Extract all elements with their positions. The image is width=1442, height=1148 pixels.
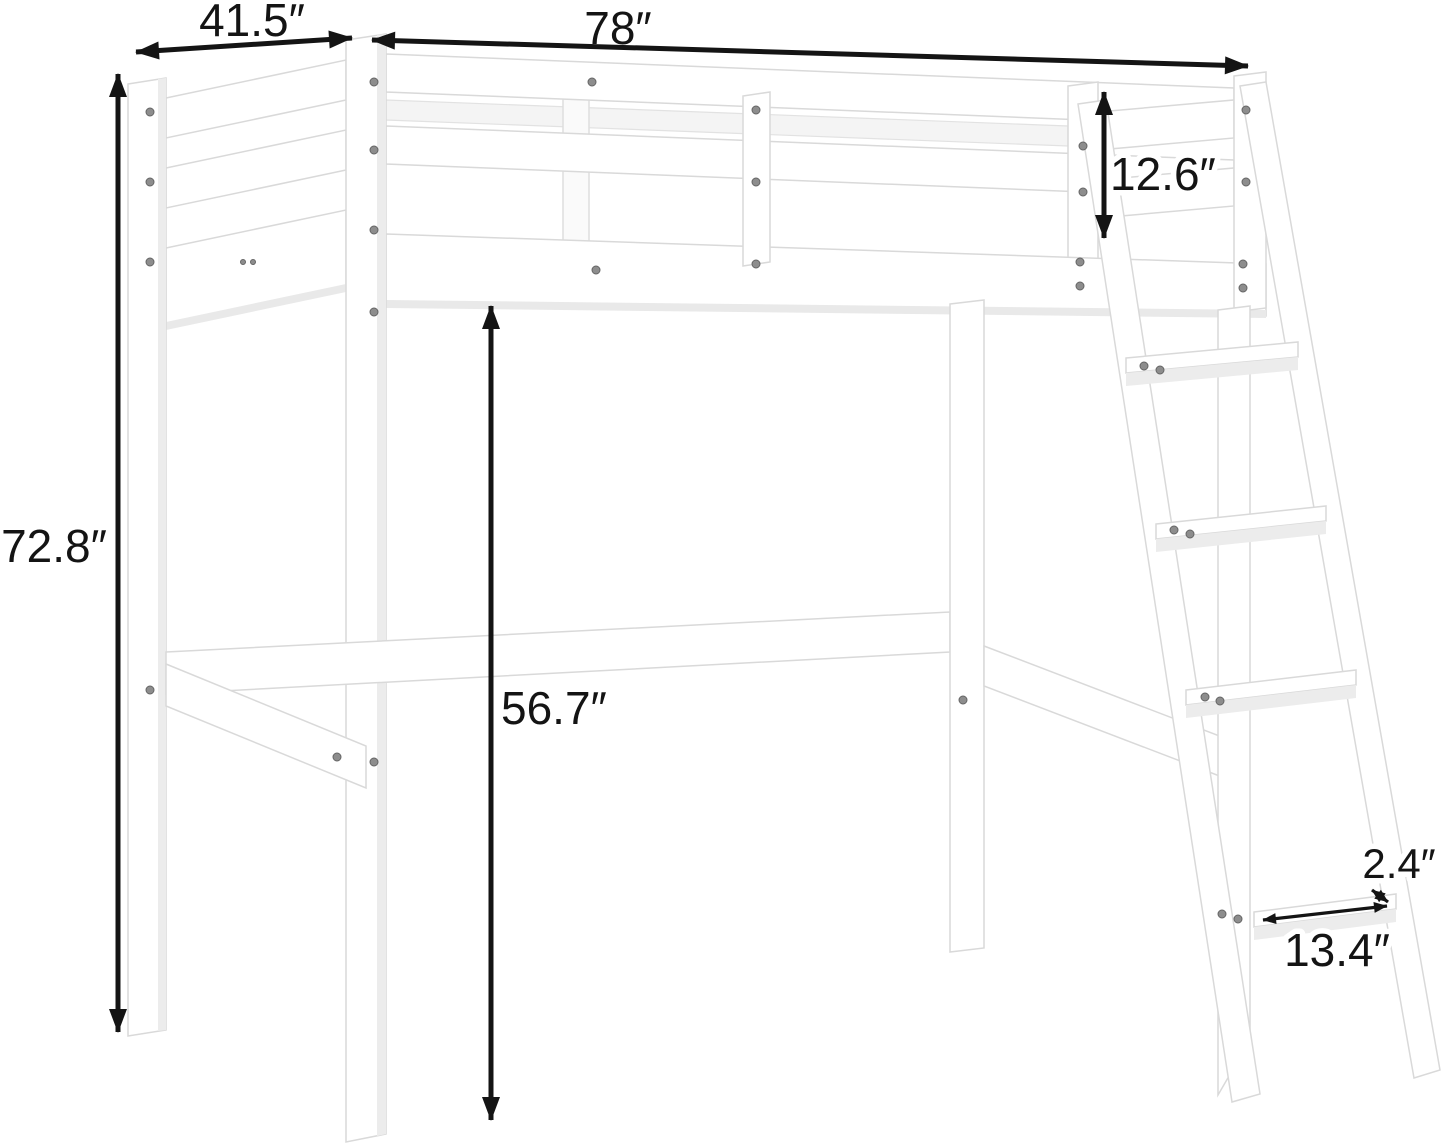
guardrail-support-left xyxy=(563,92,589,254)
back-left-post-side xyxy=(158,78,166,1031)
ladder-step-1 xyxy=(1126,342,1298,386)
dimension-label-step-thickness: 2.4″ xyxy=(1362,840,1435,887)
left-end-panel xyxy=(166,60,346,330)
back-right-leg xyxy=(950,300,984,952)
loft-bed xyxy=(128,34,1440,1142)
dimension-label-guardrail: 12.6″ xyxy=(1110,148,1216,200)
dimension-label-overall-height: 72.8″ xyxy=(1,520,107,572)
loft-bed-diagram: 41.5″ 78″ 12.6″ 72.8″ 56.7″ 2.4″ 13.4″ xyxy=(0,0,1442,1148)
lower-structure xyxy=(166,300,1250,1095)
diagram-canvas: 41.5″ 78″ 12.6″ 72.8″ 56.7″ 2.4″ 13.4″ xyxy=(0,0,1442,1148)
left-rail-top xyxy=(166,60,346,138)
front-left-post-side xyxy=(377,34,386,1136)
ladder-step-3 xyxy=(1186,670,1356,718)
dimension-length: 78″ xyxy=(372,2,1248,66)
dimension-label-step-width: 13.4″ xyxy=(1284,924,1390,976)
dimension-label-clearance: 56.7″ xyxy=(501,682,607,734)
dimension-clearance-height: 56.7″ xyxy=(491,306,607,1120)
dimension-label-length: 78″ xyxy=(584,2,651,54)
dimension-label-depth: 41.5″ xyxy=(199,0,305,46)
dimension-overall-height: 72.8″ xyxy=(1,74,118,1032)
left-rail-middle xyxy=(166,130,346,208)
dimension-depth: 41.5″ xyxy=(136,0,352,52)
